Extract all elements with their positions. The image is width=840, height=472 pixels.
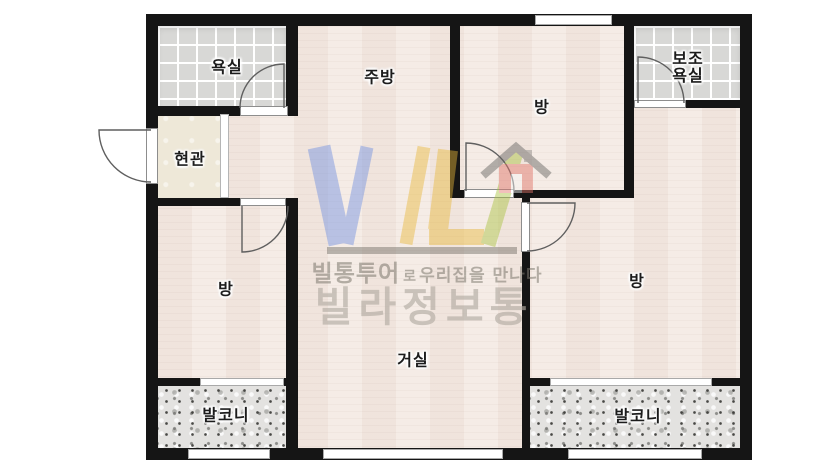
door-swing-leftroom [242,206,288,252]
room-label-room-top: 방 [534,100,550,117]
room-label-room-left: 방 [218,282,234,299]
watermark-brand-name: 빌라정보통 [315,273,534,333]
door-swing-bathroom [240,64,284,108]
door-swing-entrance [99,130,151,182]
room-label-bathroom: 욕실 [211,60,242,77]
door-swings [0,0,840,472]
room-label-kitchen: 주방 [364,70,395,87]
room-label-aux-bathroom: 보조 욕실 [672,51,703,85]
room-label-room-right: 방 [629,274,645,291]
room-label-balcony-left: 발코니 [202,408,249,425]
room-label-balcony-right: 발코니 [614,409,661,426]
room-label-living-room: 거실 [397,353,428,370]
floor-plan: 빌통투어로 우리집을 만나다 빌라정보통 욕실 현관 주방 방 보조 욕실 방 … [0,0,840,472]
door-swing-rightroom [527,203,575,251]
aux-bathroom-line2: 욕실 [672,66,703,85]
room-label-entrance: 현관 [174,152,205,169]
door-swing-toproom [466,143,514,191]
